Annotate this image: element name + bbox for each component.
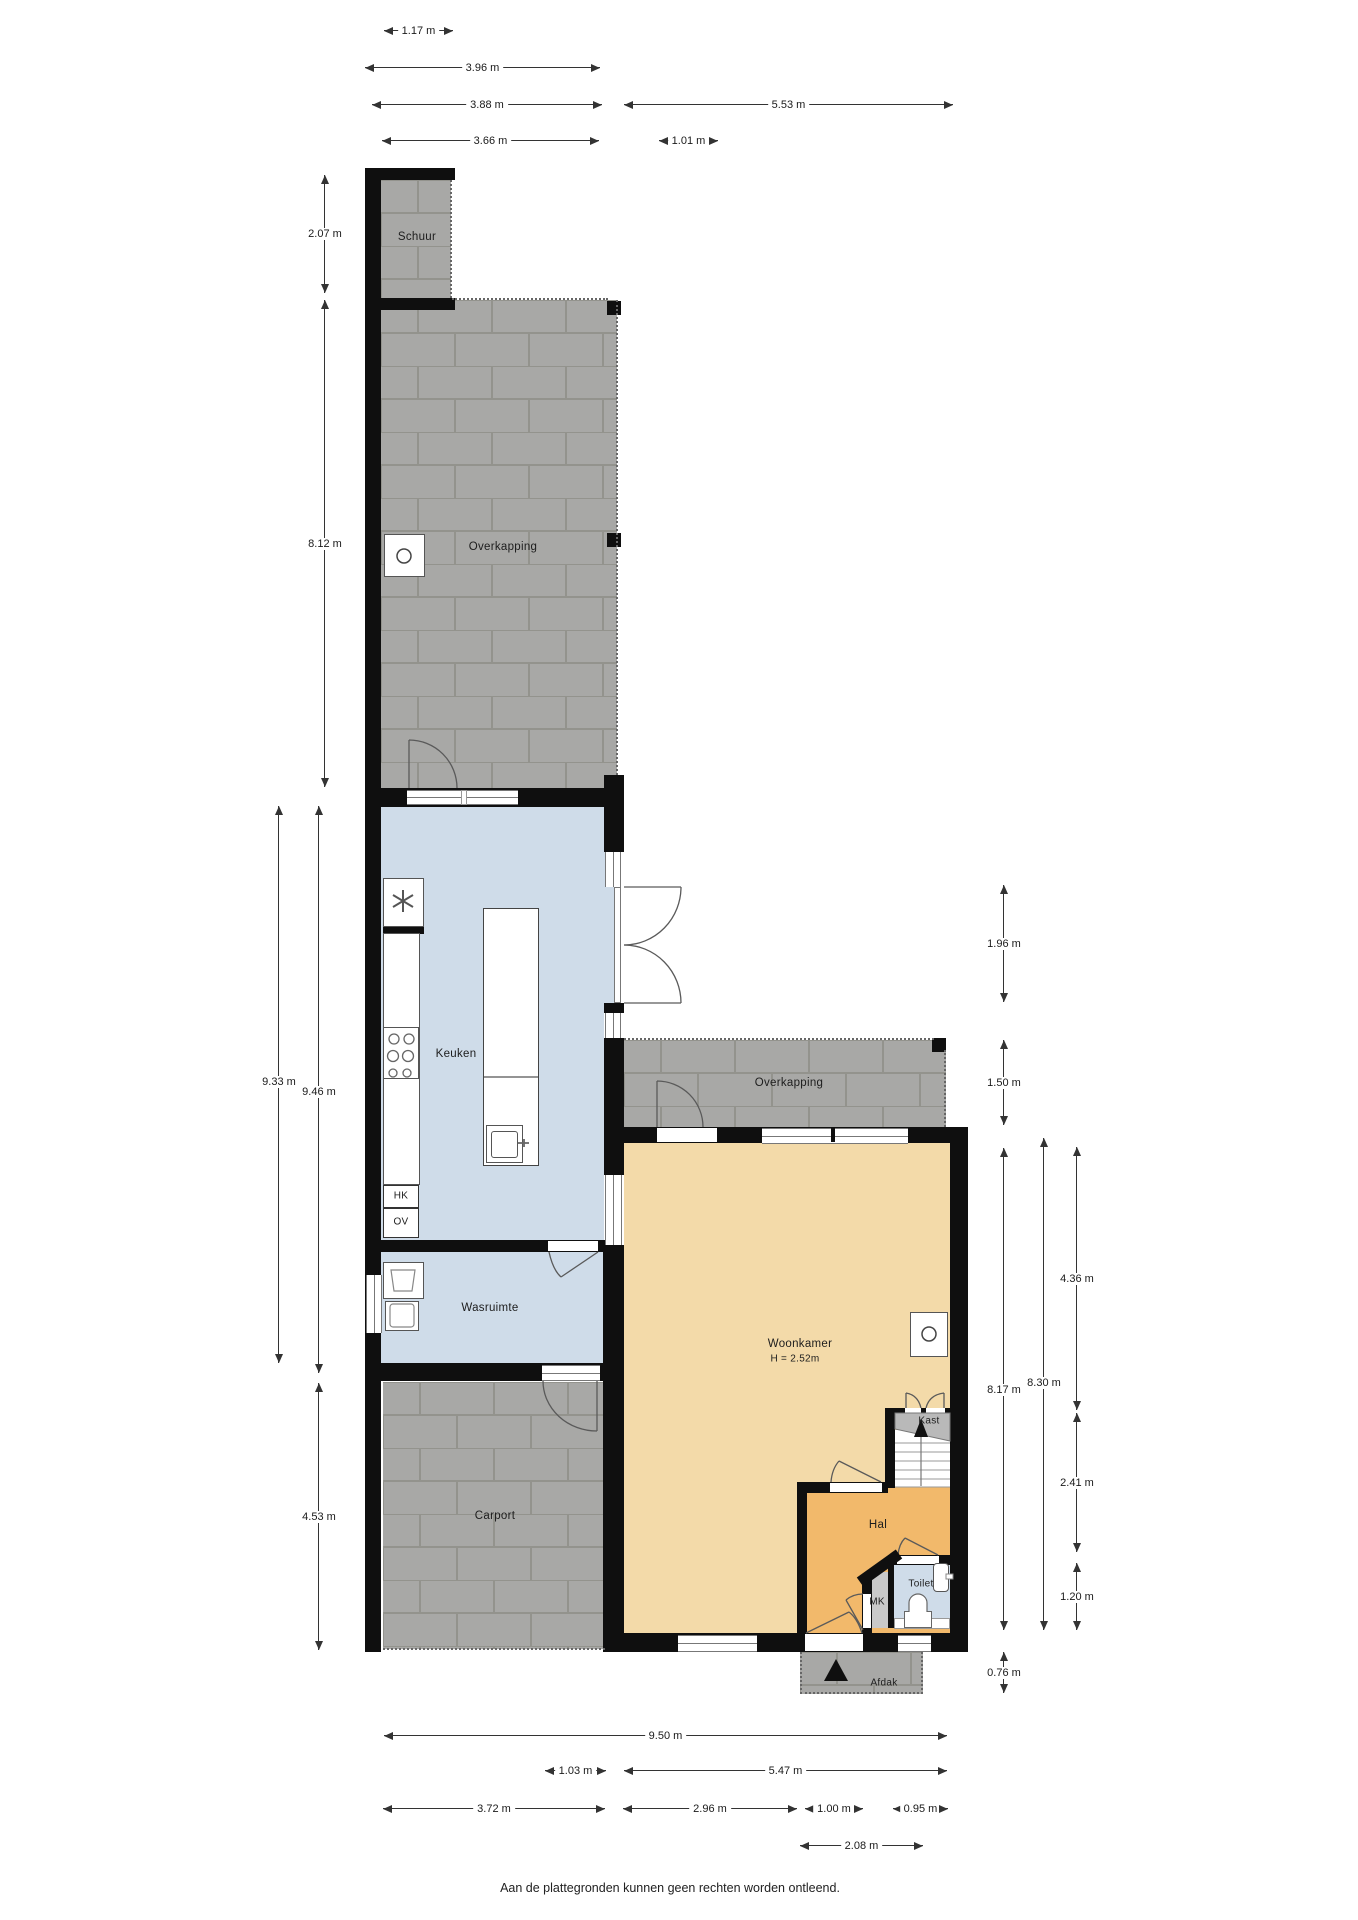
dim-bottom-2-08: 2.08 m <box>800 1845 923 1846</box>
dim-right-2-41: 2.41 m <box>1076 1413 1077 1552</box>
overkapping-right-open-edge-right <box>944 1050 946 1127</box>
mk-label: MK <box>869 1597 885 1608</box>
toilet-label: Toilet <box>908 1579 933 1590</box>
wall-schuur-top <box>365 168 455 180</box>
cooktop <box>383 1027 419 1079</box>
doorway-hal-woonkamer <box>830 1483 882 1492</box>
disclaimer-text: Aan de plattegronden kunnen geen rechten… <box>500 1881 840 1895</box>
woonkamer-height-note: H = 2.52m <box>770 1354 819 1365</box>
window-wasruimte-west <box>366 1275 382 1333</box>
doorway-keuken-wasruimte <box>548 1241 598 1251</box>
dim-right-8-30: 8.30 m <box>1043 1138 1044 1630</box>
dim-right-1-50: 1.50 m <box>1003 1040 1004 1125</box>
schuur-label: Schuur <box>398 231 436 243</box>
window-keuken-east-lower <box>605 1013 621 1038</box>
post-overkapping-top-2 <box>607 533 621 547</box>
ventilation-unit-box <box>383 878 424 927</box>
hal-label: Hal <box>869 1519 887 1531</box>
dim-right-4-36: 4.36 m <box>1076 1147 1077 1410</box>
dim-bottom-1-03: 1.03 m <box>545 1770 606 1771</box>
floorplan-canvas: Schuur Overkapping Overkapping Keuken Wa… <box>0 0 1358 1920</box>
overkapping-right-label: Overkapping <box>755 1077 824 1089</box>
doorway-front-door <box>805 1634 863 1651</box>
carport-label: Carport <box>475 1510 515 1522</box>
post-overkapping-top-1 <box>607 301 621 315</box>
overkapping-top-open-edge-top <box>452 298 608 300</box>
laundry-sink-unit <box>383 1262 424 1299</box>
window-keuken-east-upper <box>605 852 621 887</box>
dim-left-2-07: 2.07 m <box>324 175 325 293</box>
kast-label: Kast <box>918 1416 939 1427</box>
toilet-bowl-base <box>904 1611 932 1628</box>
afdak-label: Afdak <box>870 1678 897 1689</box>
hk-label: HK <box>394 1191 409 1202</box>
dim-bottom-9-50: 9.50 m <box>384 1735 947 1736</box>
toilet-hand-basin <box>933 1563 949 1592</box>
ov-label: OV <box>393 1217 408 1228</box>
window-woonkamer-south <box>678 1635 757 1652</box>
doorway-woonkamer-overkapping <box>657 1128 717 1142</box>
dim-right-0-76: 0.76 m <box>1003 1652 1004 1693</box>
wall-schuur-bottom <box>365 298 455 310</box>
window-wasruimte-south <box>542 1365 600 1381</box>
schuur-open-edge <box>450 180 452 298</box>
keuken-label: Keuken <box>436 1048 477 1060</box>
afdak-open-edge-left <box>800 1652 802 1694</box>
wall-keuken-right-post <box>604 1003 624 1013</box>
dim-top-5-53: 5.53 m <box>624 104 953 105</box>
dim-top-3-88: 3.88 m <box>372 104 602 105</box>
dim-top-3-66: 3.66 m <box>382 140 599 141</box>
doorway-kast-2 <box>926 1408 945 1413</box>
wall-hal-left <box>797 1483 807 1633</box>
woonkamer-label: Woonkamer <box>768 1338 832 1350</box>
doorway-toilet <box>897 1556 939 1564</box>
overkapping-top-label: Overkapping <box>469 541 538 553</box>
dim-top-3-96: 3.96 m <box>365 67 600 68</box>
dim-bottom-0-95: 0.95 m <box>893 1808 948 1809</box>
dim-right-8-17: 8.17 m <box>1003 1148 1004 1630</box>
dim-left-8-12: 8.12 m <box>324 300 325 787</box>
wall-keuken-right-lower <box>604 1038 624 1175</box>
dim-top-1-17: 1.17 m <box>384 30 453 31</box>
dim-bottom-1-00: 1.00 m <box>805 1808 863 1809</box>
window-woonkamer-north <box>762 1128 908 1144</box>
dim-right-1-20: 1.20 m <box>1076 1563 1077 1630</box>
dim-bottom-2-96: 2.96 m <box>623 1808 797 1809</box>
window-keuken-north-jamb <box>461 790 467 805</box>
wall-stairs-left <box>885 1408 895 1488</box>
afdak-paving <box>800 1652 923 1694</box>
boiler-box-overkapping <box>384 534 425 577</box>
window-toilet-south <box>898 1635 931 1652</box>
french-door-leaf-top <box>624 887 681 945</box>
overkapping-top-open-edge-right <box>616 300 618 775</box>
dim-top-1-01: 1.01 m <box>659 140 718 141</box>
wall-left-outer <box>365 168 381 1652</box>
island-sink-basin <box>491 1131 518 1158</box>
dim-right-1-96: 1.96 m <box>1003 885 1004 1002</box>
window-woonkamer-north-mullion <box>831 1128 835 1142</box>
french-door-frame <box>614 887 621 1003</box>
window-pass-through-keuken-woonkamer <box>605 1175 622 1245</box>
stairs-floor <box>895 1430 950 1487</box>
carport-open-edge <box>383 1648 605 1650</box>
afdak-open-edge-right <box>921 1652 923 1694</box>
doorway-kast-1 <box>905 1408 921 1413</box>
wall-keuken-right-corner <box>604 775 624 852</box>
washing-machine <box>385 1301 419 1331</box>
wall-right-outer <box>950 1127 968 1652</box>
dim-left-4-53: 4.53 m <box>318 1383 319 1650</box>
dim-left-9-46: 9.46 m <box>318 806 319 1373</box>
french-door-leaf-bottom <box>624 945 681 1003</box>
dim-left-9-33: 9.33 m <box>278 806 279 1363</box>
wall-wasruimte-right <box>603 1245 624 1652</box>
dim-bottom-3-72: 3.72 m <box>383 1808 605 1809</box>
dim-bottom-5-47: 5.47 m <box>624 1770 947 1771</box>
wasruimte-label: Wasruimte <box>461 1302 518 1314</box>
stove-woonkamer <box>910 1312 948 1357</box>
afdak-open-edge-bottom <box>800 1692 923 1694</box>
overkapping-right-open-edge-top <box>624 1038 934 1040</box>
